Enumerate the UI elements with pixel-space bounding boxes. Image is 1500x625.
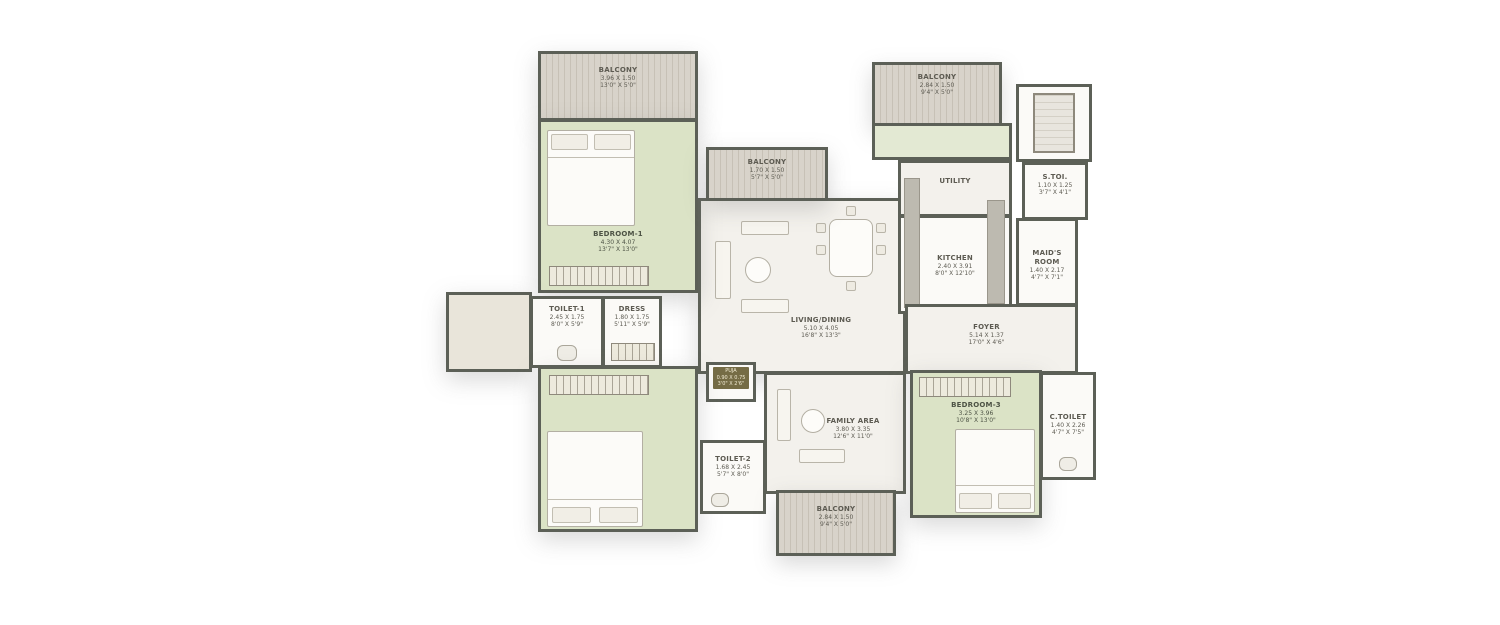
room-dim-m: 2.84 X 1.50 [875,82,999,90]
sofa [799,449,845,463]
room-label: BEDROOM-1 [541,230,695,239]
room-dim-ft: 5'7" X 5'0" [709,174,825,182]
dining-chair [846,281,856,291]
bed-line [956,485,1034,486]
lift-shaft [1016,84,1092,162]
toilet-fixture [711,493,729,507]
kitchen-counter [904,178,920,308]
room-dress: DRESS 1.80 X 1.75 5'11" X 5'9" [602,296,662,368]
room-dim-m: 1.80 X 1.75 [605,314,659,322]
bed [547,130,635,226]
room-label: DRESS [605,305,659,314]
room-label: FOYER [898,323,1075,332]
room-label: S.TOI. [1025,173,1085,182]
dining-chair [846,206,856,216]
room-balcony-top-left: BALCONY 3.96 X 1.50 13'0" X 5'0" [538,51,698,121]
sofa [715,241,731,299]
sofa [777,389,791,441]
room-dim-ft: 12'6" X 11'0" [803,433,903,441]
room-dim-ft: 3'0" X 2'6" [713,381,749,388]
room-maids-room: MAID'S ROOM 1.40 X 2.17 4'7" X 7'1" [1016,218,1078,306]
dining-chair [876,223,886,233]
bed-line [548,499,642,500]
room-dim-m: 1.10 X 1.25 [1025,182,1085,190]
entry-lobby [446,292,532,372]
room-label: MAID'S ROOM [1019,249,1075,267]
room-dim-m: 4.30 X 4.07 [541,239,695,247]
room-dim-m: 1.40 X 2.26 [1043,422,1093,430]
room-dim-ft: 17'0" X 4'6" [898,339,1075,347]
room-s-toilet: S.TOI. 1.10 X 1.25 3'7" X 4'1" [1022,162,1088,220]
sofa [741,221,789,235]
room-dim-m: 2.45 X 1.75 [533,314,601,322]
wardrobe [549,266,649,286]
toilet-fixture [557,345,577,361]
room-balcony-top-center: BALCONY 1.70 X 1.50 5'7" X 5'0" [706,147,828,201]
room-label: TOILET-1 [533,305,601,314]
room-foyer: FOYER 5.14 X 1.37 17'0" X 4'6" [905,304,1078,374]
toilet-fixture [1059,457,1077,471]
bed [955,429,1035,513]
room-dim-m: 1.68 X 2.45 [703,464,763,472]
coffee-table [745,257,771,283]
room-dim-m: 3.96 X 1.50 [541,75,695,83]
room-family-area: FAMILY AREA 3.80 X 3.35 12'6" X 11'0" [764,372,906,494]
lift-car [1033,93,1075,153]
room-dim-ft: 3'7" X 4'1" [1025,189,1085,197]
coffee-table [801,409,825,433]
room-toilet-2: TOILET-2 1.68 X 2.45 5'7" X 8'0" [700,440,766,514]
dining-table [829,219,873,277]
room-dim-m: 2.84 X 1.50 [779,514,893,522]
dining-chair [816,223,826,233]
room-balcony-bottom: BALCONY 2.84 X 1.50 9'4" X 5'0" [776,490,896,556]
room-dim-ft: 10'8" X 13'0" [913,417,1039,425]
room-dim-m: 5.14 X 1.37 [898,332,1075,340]
deck-strip [872,123,1012,160]
sofa [741,299,789,313]
room-label: BEDROOM-3 [913,401,1039,410]
room-bedroom-2: BEDROOM-2 4.06 X 4.27 13'1" X 14'0" [538,366,698,532]
room-dim-m: 3.25 X 3.96 [913,410,1039,418]
dining-chair [876,245,886,255]
room-dim-ft: 5'11" X 5'9" [605,321,659,329]
room-label: BALCONY [779,505,893,514]
room-dim-m: 5.10 X 4.05 [761,325,881,333]
kitchen-counter [987,200,1005,304]
wardrobe [611,343,655,361]
room-label: BALCONY [541,66,695,75]
wardrobe [919,377,1011,397]
floor-plan: LIVING/DINING 5.10 X 4.05 16'8" X 13'3" … [440,35,1110,580]
room-dim-ft: 13'7" X 13'0" [541,246,695,254]
room-dim-ft: 4'7" X 7'1" [1019,274,1075,282]
room-label: BALCONY [875,73,999,82]
room-label: BALCONY [709,158,825,167]
room-kitchen: KITCHEN 2.40 X 3.91 8'0" X 12'10" [898,215,1012,314]
room-dim-ft: 4'7" X 7'5" [1043,429,1093,437]
room-living-dining: LIVING/DINING 5.10 X 4.05 16'8" X 13'3" [698,198,906,374]
room-c-toilet: C.TOILET 1.40 X 2.26 4'7" X 7'5" [1040,372,1096,480]
room-label: LIVING/DINING [761,316,881,325]
room-dim-m: 1.70 X 1.50 [709,167,825,175]
pillow [599,507,639,523]
dining-chair [816,245,826,255]
room-dim-ft: 9'4" X 5'0" [779,521,893,529]
bed-line [548,157,634,158]
pillow [551,134,587,150]
room-dim-ft: 8'0" X 5'9" [533,321,601,329]
room-label: C.TOILET [1043,413,1093,422]
room-dim-ft: 16'8" X 13'3" [761,332,881,340]
pillow [594,134,630,150]
room-toilet-1: TOILET-1 2.45 X 1.75 8'0" X 5'9" [530,296,604,368]
room-dim-ft: 9'4" X 5'0" [875,89,999,97]
room-bedroom-1: BEDROOM-1 4.30 X 4.07 13'7" X 13'0" [538,119,698,293]
room-balcony-top-right: BALCONY 2.84 X 1.50 9'4" X 5'0" [872,62,1002,126]
room-bedroom-3: BEDROOM-3 3.25 X 3.96 10'8" X 13'0" [910,370,1042,518]
puja-label-tag: PUJA 0.90 X 0.75 3'0" X 2'6" [713,367,749,389]
pillow [959,493,992,509]
wardrobe [549,375,649,395]
pillow [552,507,592,523]
pillow [998,493,1031,509]
room-puja: PUJA 0.90 X 0.75 3'0" X 2'6" [706,362,756,402]
room-label: TOILET-2 [703,455,763,464]
room-dim-ft: 13'0" X 5'0" [541,82,695,90]
room-dim-m: 1.40 X 2.17 [1019,267,1075,275]
bed [547,431,643,527]
room-dim-ft: 5'7" X 8'0" [703,471,763,479]
